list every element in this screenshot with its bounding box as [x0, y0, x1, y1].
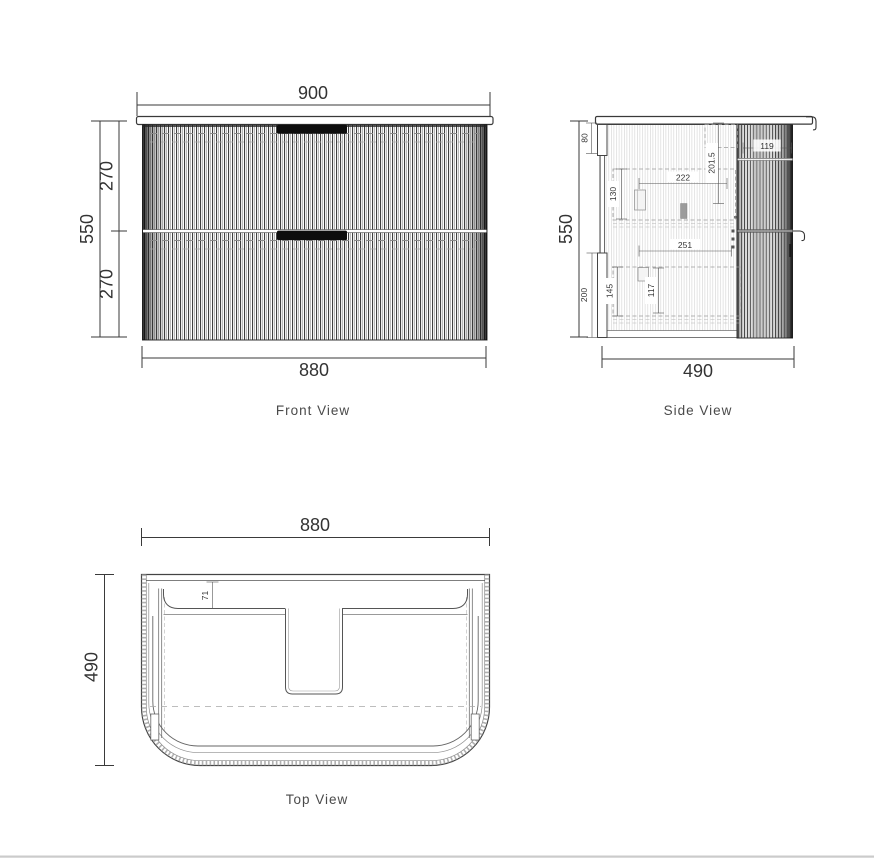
dim-side-bracket-bottom: 200	[579, 253, 598, 338]
dim-text-251: 251	[678, 240, 692, 250]
top-plumbing-notch	[286, 609, 343, 695]
dim-text-side-550: 550	[556, 214, 576, 244]
dim-front-overall-height: 550	[77, 121, 111, 337]
dim-text-550: 550	[77, 214, 97, 244]
dim-side-overall-height: 550	[556, 121, 588, 337]
vanity-drawing-svg: 900 550 270 270 880 Front View	[0, 0, 874, 860]
dim-text-222: 222	[676, 173, 690, 183]
side-wall-bracket-top	[598, 125, 608, 156]
top-view: 880 490 71 Top View	[82, 515, 490, 807]
dim-text-130: 130	[608, 187, 618, 201]
top-view-label: Top View	[286, 792, 349, 807]
front-view: 900 550 270 270 880 Front View	[77, 83, 493, 418]
dim-text-900: 900	[298, 83, 328, 103]
front-view-label: Front View	[276, 403, 350, 418]
dim-front-top-width: 900	[137, 83, 490, 116]
dim-text-117: 117	[646, 283, 656, 297]
side-view: 550 80 200 130 222	[556, 117, 816, 419]
front-upper-drawer-handle	[277, 125, 347, 134]
dim-text-201-5: 201.5	[707, 152, 717, 174]
dim-text-145: 145	[605, 284, 615, 298]
dim-text-71: 71	[200, 591, 210, 601]
dim-text-270-upper: 270	[97, 161, 117, 191]
dim-text-80: 80	[580, 133, 590, 143]
dim-side-bracket-top: 80	[580, 123, 598, 154]
side-view-label: Side View	[664, 403, 733, 418]
dim-text-side-490: 490	[683, 361, 713, 381]
dim-text-top-880: 880	[300, 515, 330, 535]
side-countertop	[596, 117, 813, 125]
dim-text-270-lower: 270	[97, 269, 117, 299]
dim-side-depth: 490	[602, 346, 794, 381]
dim-front-drawer-heights: 270 270	[97, 121, 128, 337]
dim-top-width: 880	[142, 515, 490, 546]
side-bottom-panel	[600, 331, 737, 338]
page-footer-line	[0, 856, 874, 858]
dim-text-880: 880	[299, 360, 329, 380]
front-lower-drawer-handle	[277, 231, 347, 241]
dim-text-200: 200	[579, 288, 589, 302]
dim-text-top-490: 490	[82, 652, 102, 682]
technical-drawing-canvas: 900 550 270 270 880 Front View	[0, 0, 874, 860]
dim-top-depth: 490	[82, 575, 115, 766]
top-right-bracket	[471, 714, 479, 740]
front-countertop	[137, 117, 494, 125]
top-left-bracket	[151, 714, 159, 740]
dim-front-cabinet-width: 880	[142, 346, 486, 380]
dim-text-119: 119	[760, 141, 774, 151]
